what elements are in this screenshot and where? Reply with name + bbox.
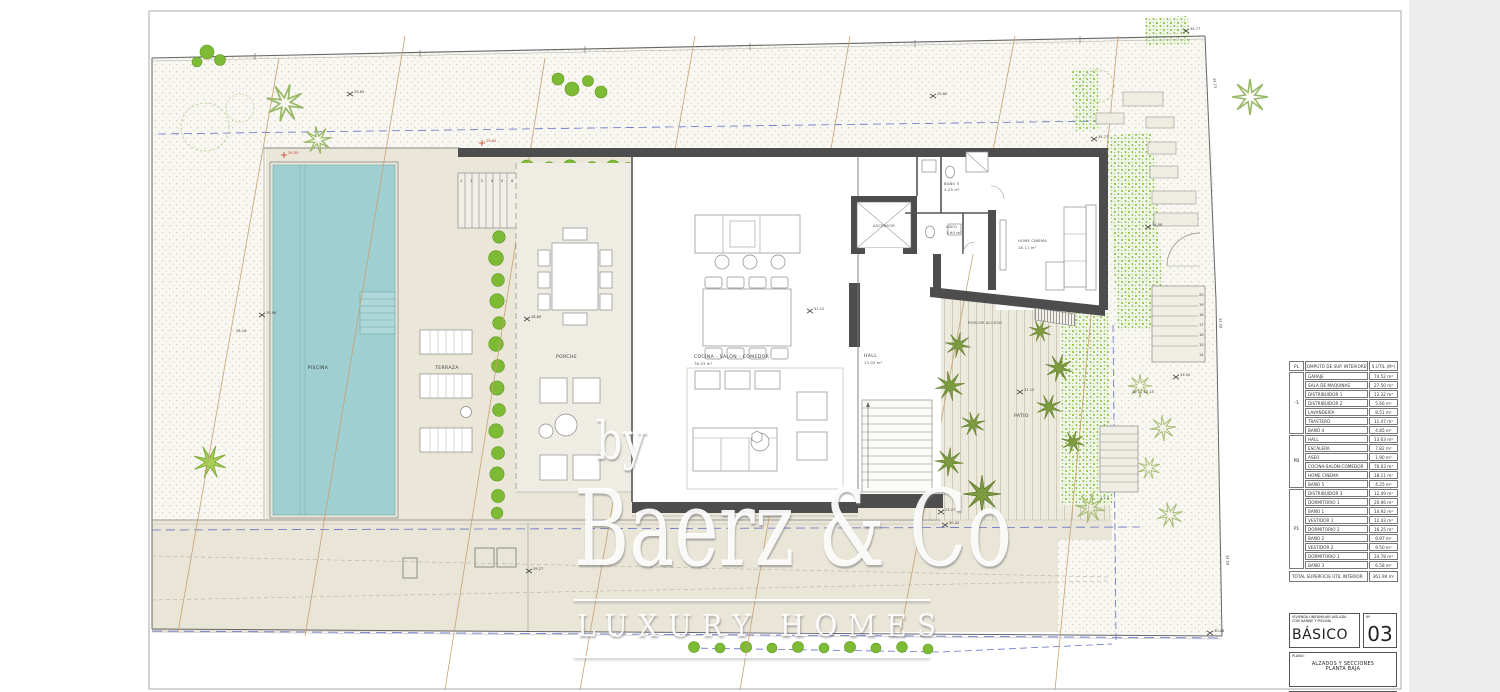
svg-text:29.60: 29.60 bbox=[354, 90, 365, 94]
table-row: HALL 13.03 m² bbox=[1305, 435, 1398, 443]
terraza-label: TERRAZA bbox=[434, 365, 459, 371]
interior-stairs: ESCALERA bbox=[862, 400, 932, 500]
svg-text:31.12: 31.12 bbox=[814, 307, 824, 311]
table-row: COCINA-SALÓN-COMEDOR 76.03 m² bbox=[1305, 462, 1398, 470]
area-group-ground: PB HALL 13.03 m² ESCALERA 7.82 m² ASEO 1… bbox=[1289, 435, 1398, 488]
table-row: DISTRIBUIDOR 3 12.49 m² bbox=[1305, 489, 1398, 497]
watermark-rule-bottom bbox=[574, 656, 930, 658]
table-row: ESCALERA 7.82 m² bbox=[1305, 444, 1398, 452]
sun-loungers bbox=[420, 330, 472, 452]
svg-text:29.27: 29.27 bbox=[533, 567, 543, 571]
area-group-basement: -1 GARAJE 74.52 m² SALA DE MAQUINAS 27.5… bbox=[1289, 372, 1398, 434]
svg-text:29.35: 29.35 bbox=[288, 151, 298, 155]
svg-text:18: 18 bbox=[1199, 313, 1204, 317]
table-row: GARAJE 74.52 m² bbox=[1305, 372, 1398, 380]
svg-text:17: 17 bbox=[1199, 323, 1204, 327]
table-row: BAÑO 5 4.25 m² bbox=[1305, 480, 1398, 488]
table-row: BAÑO 2 6.97 m² bbox=[1305, 534, 1398, 542]
stair-numbers-bottom: 10 11 12 13 bbox=[1132, 390, 1154, 394]
architectural-drawing-sheet: PISCINA TERRAZA bbox=[0, 0, 1500, 692]
patio-stairs: 1 2 3 bbox=[1100, 426, 1138, 500]
svg-text:1.90 m²: 1.90 m² bbox=[946, 231, 962, 235]
svg-text:31.12: 31.12 bbox=[1024, 388, 1034, 392]
area-group-first: P1 DISTRIBUIDOR 3 12.49 m² DORMITORIO 1 … bbox=[1289, 489, 1398, 569]
svg-text:30.28: 30.28 bbox=[1214, 629, 1225, 633]
table-row: BAÑO 3 6.58 m² bbox=[1305, 561, 1398, 569]
svg-text:23.27: 23.27 bbox=[945, 508, 955, 512]
table-row: DISTRIBUIDOR 2 5.66 m² bbox=[1305, 399, 1398, 407]
table-row: DORMITORIO 3 24.78 m² bbox=[1305, 552, 1398, 560]
sheet-number-box: Nº 03 bbox=[1363, 613, 1397, 648]
page-margin bbox=[1409, 0, 1500, 692]
svg-text:34.58: 34.58 bbox=[1225, 555, 1230, 566]
svg-text:33.50: 33.50 bbox=[1180, 373, 1191, 377]
swimming-pool: PISCINA bbox=[270, 162, 398, 518]
svg-text:76.03 m²: 76.03 m² bbox=[694, 362, 713, 366]
table-row: ASEO 1.90 m² bbox=[1305, 453, 1398, 461]
table-row: BAÑO 4 4.85 m² bbox=[1305, 426, 1398, 434]
svg-text:29.62: 29.62 bbox=[486, 139, 496, 143]
area-table: PL COMPUTO DE SUP. INTERIORES S.UTIL (M²… bbox=[1289, 361, 1398, 582]
cocina-label: COCINA - SALÓN - COMEDOR bbox=[694, 353, 770, 360]
patio-label: PATIO bbox=[1014, 413, 1029, 419]
escalera-label: ESCALERA bbox=[876, 496, 897, 500]
floor-plan-drawing: PISCINA TERRAZA bbox=[0, 0, 1500, 692]
table-row: SALA DE MAQUINAS 27.50 m² bbox=[1305, 381, 1398, 389]
table-row: DORMITORIO 1 20.06 m² bbox=[1305, 498, 1398, 506]
table-row: DISTRIBUIDOR 1 12.32 m² bbox=[1305, 390, 1398, 398]
terrace: TERRAZA bbox=[420, 330, 472, 452]
project-box: VIVIENDA UNIFAMILIAR AISLADA CON GARAJE … bbox=[1289, 613, 1360, 648]
svg-text:30.42: 30.42 bbox=[949, 521, 959, 525]
table-row: LAVANDERÍA 8.51 m² bbox=[1305, 408, 1398, 416]
table-row: HOME CINEMA 18.11 m² bbox=[1305, 471, 1398, 479]
porche-label: PORCHE bbox=[556, 354, 577, 360]
sheet-number: 03 bbox=[1364, 622, 1396, 646]
table-row: VESTIDOR 2 9.50 m² bbox=[1305, 543, 1398, 551]
svg-text:34.50: 34.50 bbox=[1218, 318, 1223, 329]
bano5-label: BAÑO 5 bbox=[944, 181, 960, 186]
porch-floor bbox=[516, 163, 632, 492]
plano-box: PLANO: ALZADOS Y SECCIONES PLANTA BAJA bbox=[1289, 652, 1397, 687]
svg-text:16: 16 bbox=[1199, 333, 1204, 337]
svg-text:4.25 m²: 4.25 m² bbox=[944, 188, 960, 192]
table-row: BAÑO 1 14.92 m² bbox=[1305, 507, 1398, 515]
svg-text:19: 19 bbox=[1199, 303, 1204, 307]
piscina-label: PISCINA bbox=[308, 365, 329, 371]
porche-acceso-label: PORCHE ACCESO bbox=[968, 321, 1002, 325]
svg-text:15: 15 bbox=[1199, 343, 1204, 347]
svg-text:13.03 m²: 13.03 m² bbox=[864, 361, 883, 365]
svg-text:28.89: 28.89 bbox=[531, 315, 542, 319]
area-total-row: TOTAL SUPERFICIE ÚTIL INTERIOR 361.94 m² bbox=[1289, 571, 1398, 582]
hall-label: HALL bbox=[864, 353, 877, 359]
svg-text:34.58: 34.58 bbox=[1152, 223, 1163, 227]
table-row: TRASTERO 11.47 m² bbox=[1305, 417, 1398, 425]
watermark-rule-top bbox=[574, 599, 930, 601]
bottom-hedge-row bbox=[689, 641, 934, 654]
ascensor-label: ASCENSOR bbox=[873, 224, 895, 228]
title-block: VIVIENDA UNIFAMILIAR AISLADA CON GARAJE … bbox=[1289, 613, 1397, 692]
svg-text:18.11 m²: 18.11 m² bbox=[1018, 246, 1037, 250]
stair-numbers-patio: 1 2 3 bbox=[1100, 496, 1109, 500]
area-table-header: PL COMPUTO DE SUP. INTERIORES S.UTIL (M²… bbox=[1289, 361, 1398, 371]
elevator: ASCENSOR bbox=[851, 196, 917, 254]
table-row: DORMITORIO 2 16.25 m² bbox=[1305, 525, 1398, 533]
aseo-label: ASEO bbox=[946, 225, 957, 229]
phase-label: BÁSICO bbox=[1292, 627, 1357, 643]
home-cinema-label: HOME CINEMA bbox=[1018, 239, 1047, 243]
svg-text:14: 14 bbox=[1199, 353, 1204, 357]
svg-text:20: 20 bbox=[1199, 293, 1204, 297]
svg-text:34.77: 34.77 bbox=[1098, 135, 1108, 139]
svg-text:28.16: 28.16 bbox=[236, 329, 247, 333]
table-row: VESTIDOR 1 12.43 m² bbox=[1305, 516, 1398, 524]
svg-text:34.73: 34.73 bbox=[1212, 78, 1217, 89]
svg-text:29.60: 29.60 bbox=[937, 92, 948, 96]
svg-text:34.77: 34.77 bbox=[1190, 27, 1200, 31]
svg-text:29.96: 29.96 bbox=[266, 311, 277, 315]
